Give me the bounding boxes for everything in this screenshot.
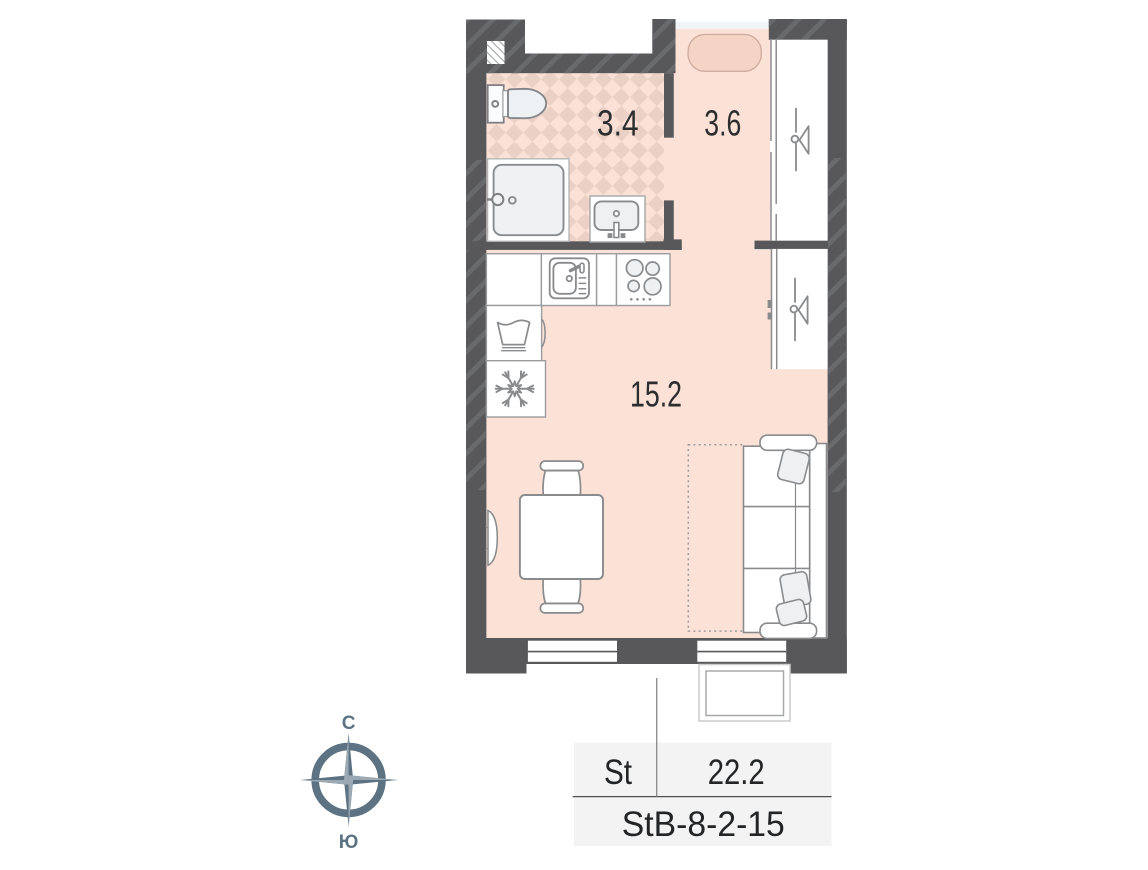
svg-text:3.6: 3.6: [704, 103, 741, 144]
svg-text:С: С: [342, 713, 356, 734]
svg-text:3.4: 3.4: [597, 103, 639, 144]
svg-text:St: St: [604, 753, 632, 792]
svg-text:22.2: 22.2: [708, 753, 765, 792]
svg-text:Ю: Ю: [339, 832, 359, 853]
svg-text:StB-8-2-15: StB-8-2-15: [622, 805, 785, 844]
svg-text:15.2: 15.2: [630, 374, 682, 415]
